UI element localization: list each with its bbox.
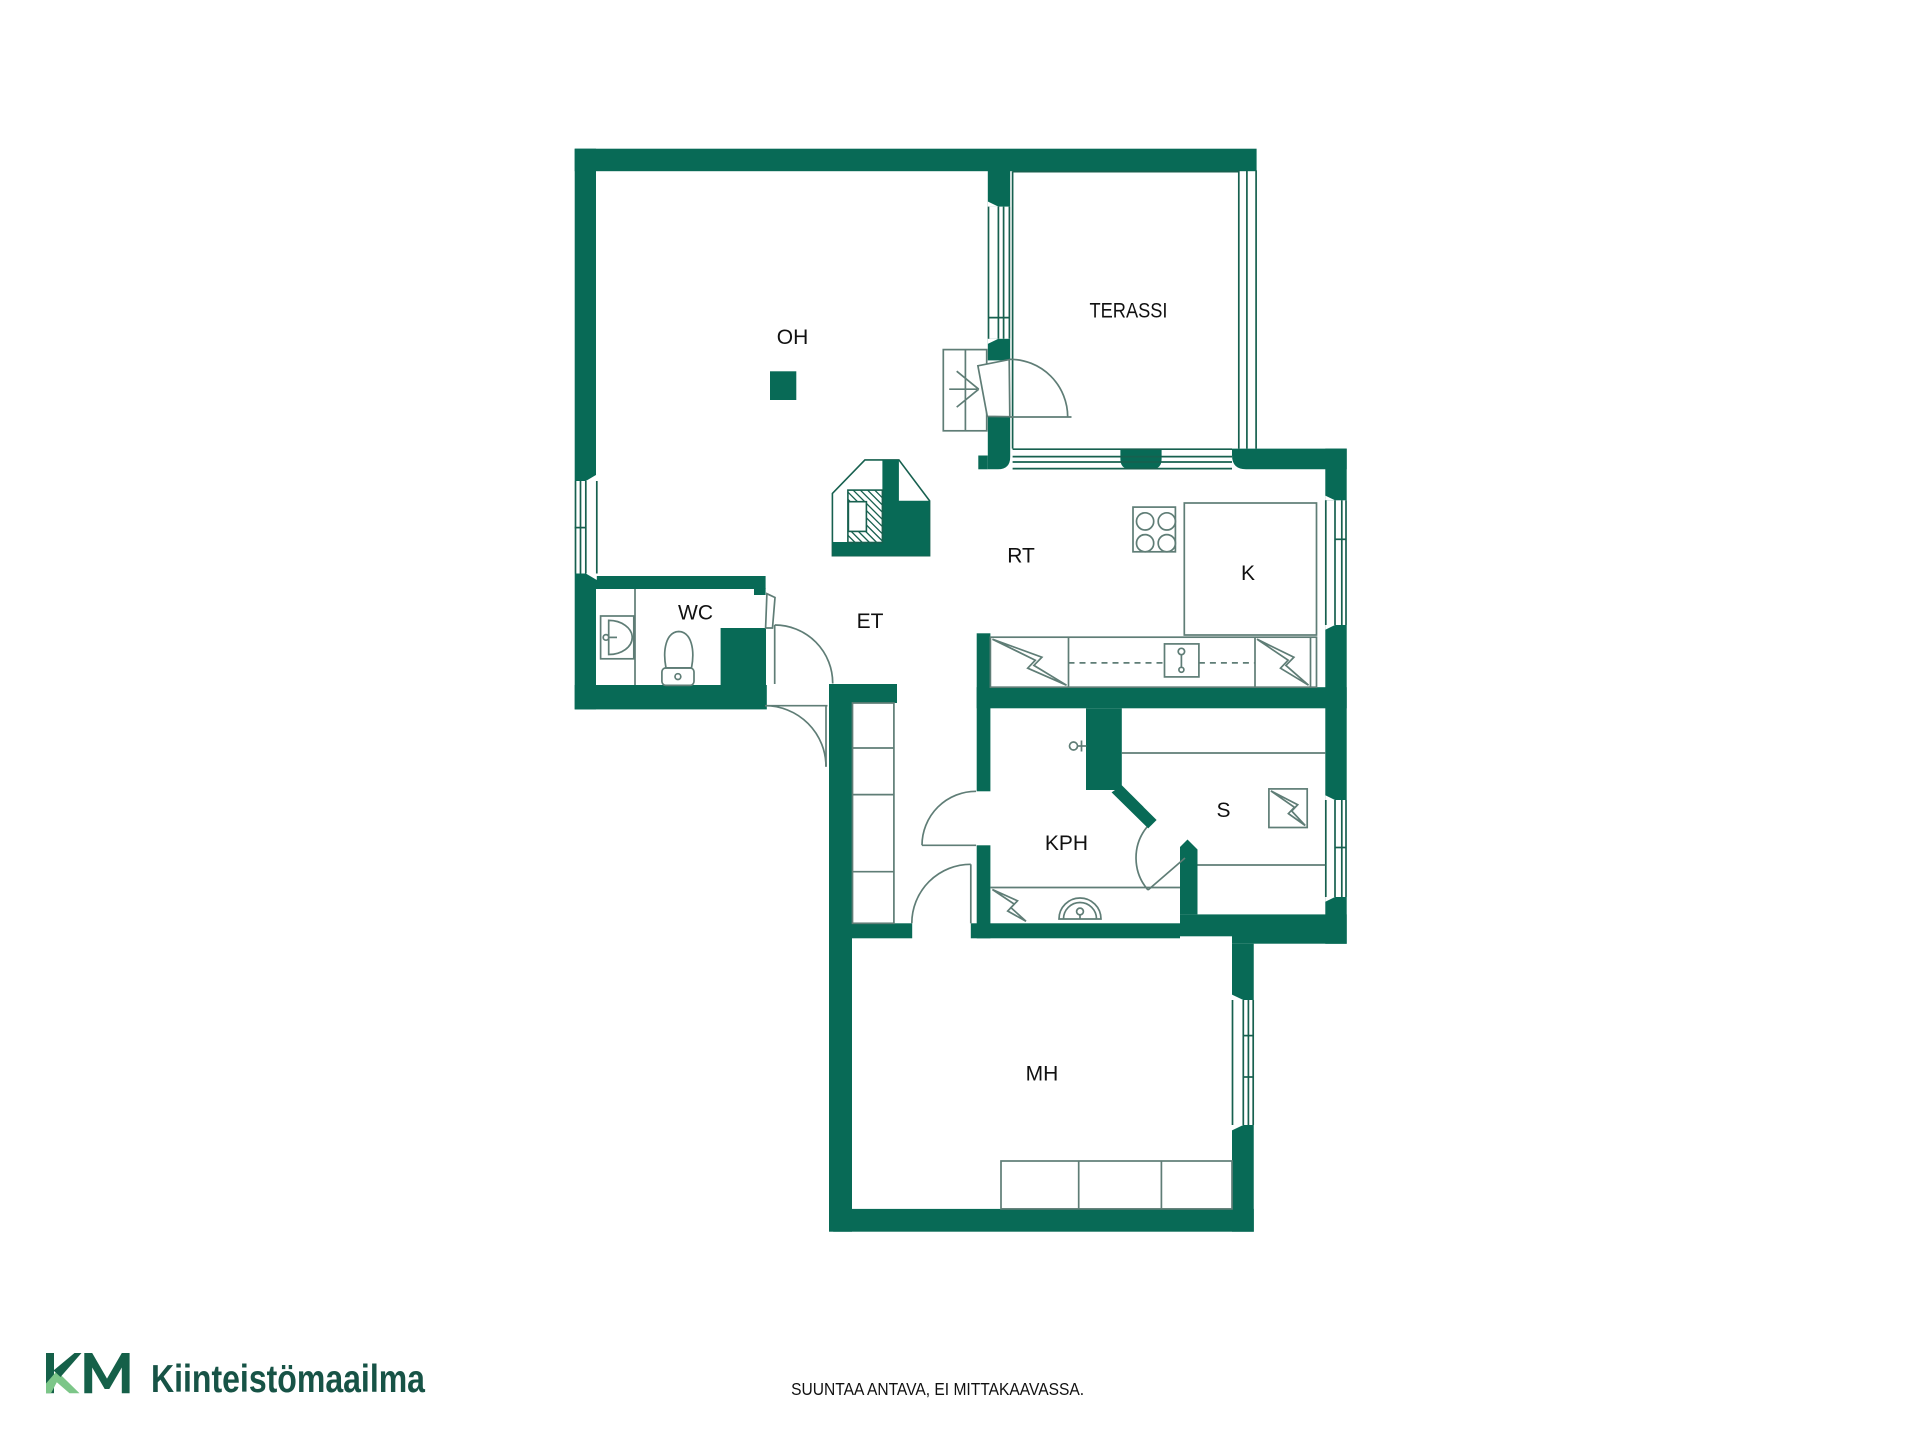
svg-text:RT: RT bbox=[1007, 545, 1035, 568]
svg-text:S: S bbox=[1216, 799, 1230, 822]
svg-text:K: K bbox=[1241, 562, 1255, 585]
svg-text:KPH: KPH bbox=[1045, 832, 1088, 855]
svg-text:Kiinteistömaailma: Kiinteistömaailma bbox=[151, 1358, 425, 1401]
svg-text:WC: WC bbox=[678, 601, 713, 624]
svg-text:SUUNTAA ANTAVA, EI MITTAKAAVAS: SUUNTAA ANTAVA, EI MITTAKAAVASSA. bbox=[791, 1379, 1084, 1399]
svg-text:MH: MH bbox=[1026, 1063, 1059, 1086]
svg-text:ET: ET bbox=[857, 610, 884, 633]
svg-text:OH: OH bbox=[777, 326, 809, 349]
svg-text:TERASSI: TERASSI bbox=[1090, 300, 1168, 323]
